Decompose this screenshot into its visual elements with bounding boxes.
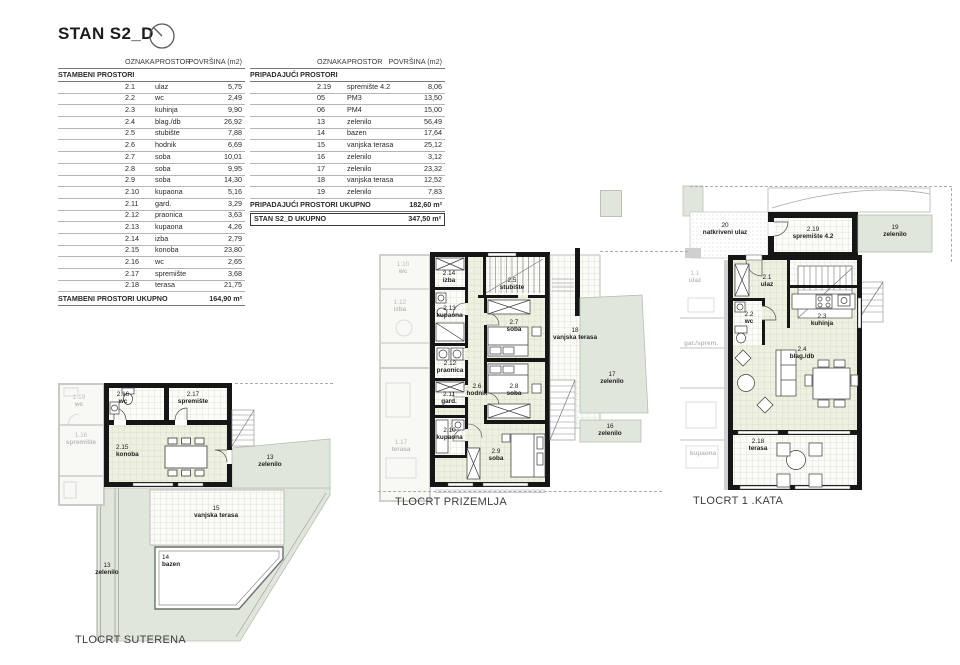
cell-povrsina: 10,01 (224, 151, 242, 162)
cell-povrsina: 3,29 (228, 198, 242, 209)
col-prostor: PROSTOR (347, 56, 382, 67)
neighbor-label-izba: 1.12izba (386, 299, 414, 314)
table-row: 2.18 terasa 21,75 (58, 281, 245, 293)
room-label-blag-db-2-4: 2.4blag./db (780, 346, 824, 361)
boundary-dash-line (600, 251, 688, 252)
cell-prostor: spremište (155, 268, 186, 279)
cell-oznaka: 2.3 (125, 104, 135, 115)
floorplan-sheet: STAN S2_D OZNAKA PROSTOR POVRŠINA (m2) S… (0, 0, 960, 665)
cell-oznaka: 2.12 (125, 209, 139, 220)
table-header: OZNAKA PROSTOR POVRŠINA (m2) (250, 55, 445, 69)
cell-oznaka: 2.1 (125, 81, 135, 92)
cell-prostor: wc (155, 92, 164, 103)
neighbor-label-spremiste: 1.16spremište (58, 432, 104, 447)
table-header: OZNAKA PROSTOR POVRŠINA (m2) (58, 55, 245, 69)
cell-povrsina: 8,06 (428, 81, 442, 92)
cell-povrsina: 14,30 (224, 174, 242, 185)
cell-povrsina: 3,68 (228, 268, 242, 279)
cell-oznaka: 2.9 (125, 174, 135, 185)
table-row: 2.3 kuhinja 9,90 (58, 105, 245, 117)
kitchen (792, 294, 855, 309)
table-row: 2.6 hodnik 6,69 (58, 140, 245, 152)
table-row: 2.10 kupaona 5,16 (58, 187, 245, 199)
room-label-wc-2-2: 2.2wc (736, 311, 762, 326)
room-label-praonica-2-12: 2.12praonica (432, 360, 468, 375)
exterior-stairs (232, 410, 254, 446)
cell-povrsina: 7,88 (228, 127, 242, 138)
room-label-izba-2-14: 2.14izba (434, 270, 464, 285)
cell-prostor: zelenilo (347, 163, 371, 174)
cell-povrsina: 26,92 (224, 116, 242, 127)
cell-oznaka: 2.13 (125, 221, 139, 232)
room-label-kupaona-2-10: 2.10kupaona (433, 427, 466, 442)
cell-povrsina: 5,16 (228, 186, 242, 197)
cell-prostor: terasa (155, 279, 175, 290)
cell-prostor: PM3 (347, 92, 362, 103)
cell-oznaka: 17 (317, 163, 325, 174)
north-arrow-icon (146, 20, 180, 54)
cell-oznaka: 2.8 (125, 163, 135, 174)
table-row: 2.13 kupaona 4,26 (58, 222, 245, 234)
cell-povrsina: 2,49 (228, 92, 242, 103)
table-row: 2.17 spremište 3,68 (58, 269, 245, 281)
cell-prostor: ulaz (155, 81, 168, 92)
cell-prostor: praonica (155, 209, 183, 220)
cell-povrsina: 9,95 (228, 163, 242, 174)
area-label-bazen-14: 14bazen (162, 554, 180, 569)
pripadajuci-rows: 2.19 spremište 4.2 8,06 05 PM3 13,50 06 … (250, 82, 445, 199)
neighbor-label-gard-sprem: gar./sprem. (680, 340, 722, 347)
room-label-soba-2-7: 2.7soba (496, 319, 532, 334)
caption-tlocrt-suterena: TLOCRT SUTERENA (75, 634, 186, 646)
area-label-natkriveni-ulaz-20: 20natkriveni ulaz (694, 222, 756, 237)
cell-oznaka: 2.4 (125, 116, 135, 127)
area-label-zelenilo-strip: 13zelenilo (86, 562, 128, 577)
cell-povrsina: 17,64 (424, 127, 442, 138)
col-povrsina: POVRŠINA (m2) (188, 56, 242, 67)
area-label-zelenilo-19: 19zelenilo (872, 224, 918, 239)
caption-tlocrt-1-kata: TLOCRT 1 .KATA (693, 495, 783, 507)
room-label-soba-2-9: 2.9soba (478, 448, 514, 463)
green-area-patch (600, 190, 622, 217)
entry-closet (735, 264, 749, 296)
neighbor-label-kupaona: kupaona (684, 450, 722, 457)
cell-prostor: gard. (155, 198, 171, 209)
cell-oznaka: 2.16 (125, 256, 139, 267)
table-row: 2.14 izba 2,79 (58, 234, 245, 246)
exterior-stairs (550, 380, 575, 440)
cell-povrsina: 5,75 (228, 81, 242, 92)
col-oznaka: OZNAKA (125, 56, 155, 67)
area-label-vanjska-terasa-15: 15vanjska terasa (178, 505, 254, 520)
cell-prostor: soba (155, 163, 171, 174)
table-row: 2.5 stubište 7,88 (58, 129, 245, 141)
table-row: 2.2 wc 2,49 (58, 94, 245, 106)
green-areas (580, 295, 648, 442)
cell-povrsina: 23,32 (424, 163, 442, 174)
grand-total-row: STAN S2_D UKUPNO 347,50 m² (250, 213, 445, 226)
cell-oznaka: 16 (317, 151, 325, 162)
cell-prostor: wc (155, 256, 164, 267)
cell-povrsina: 3,12 (428, 151, 442, 162)
page-title: STAN S2_D (58, 24, 154, 44)
cell-prostor: blag./db (155, 116, 181, 127)
room-label-gard-2-11: 2.11gard. (434, 391, 464, 406)
boundary-dash-line (951, 188, 952, 262)
cell-oznaka: 2.7 (125, 151, 135, 162)
plan-kata1: 20natkriveni ulaz 2.19spremište 4.2 19ze… (680, 178, 960, 513)
cell-oznaka: 14 (317, 127, 325, 138)
area-label-zelenilo-13: 13zelenilo (248, 454, 292, 469)
cell-povrsina: 23,80 (224, 244, 242, 255)
table-row: 2.15 konoba 23,80 (58, 246, 245, 258)
area-label-vanjska-terasa-18: 18vanjska terasa (552, 327, 598, 342)
table-row: 2.1 ulaz 5,75 (58, 82, 245, 94)
cell-prostor: kupaona (155, 186, 183, 197)
windows (133, 483, 203, 486)
cell-prostor: kuhinja (155, 104, 178, 115)
room-label-spremiste-2-19: 2.19spremište 4.2 (776, 226, 850, 241)
plan-prizemlje: 2.14izba 2.5stubište 2.13kupaona 2.7soba… (378, 243, 653, 518)
cell-oznaka: 15 (317, 139, 325, 150)
cell-prostor: izba (155, 233, 168, 244)
room-label-ulaz-2-1: 2.1ulaz (752, 274, 782, 289)
cell-oznaka: 2.14 (125, 233, 139, 244)
cell-oznaka: 13 (317, 116, 325, 127)
table-row: 2.8 soba 9,95 (58, 164, 245, 176)
cell-povrsina: 3,63 (228, 209, 242, 220)
cell-oznaka: 2.10 (125, 186, 139, 197)
room-label-terasa-2-18: 2.18terasa (740, 438, 776, 453)
cell-prostor: konoba (155, 244, 179, 255)
cell-oznaka: 2.19 (317, 81, 331, 92)
cell-povrsina: 13,50 (424, 92, 442, 103)
caption-tlocrt-prizemlja: TLOCRT PRIZEMLJA (395, 496, 507, 508)
neighbor-label-ulaz: 1.1ulaz (682, 270, 708, 285)
plan-suterena-drawing (58, 378, 338, 665)
pripadajuci-total-row: PRIPADAJUĆI PROSTORI UKUPNO 182,60 m² (250, 199, 445, 213)
table-row: 2.4 blag./db 26,92 (58, 117, 245, 129)
table-row: 2.16 wc 2,65 (58, 257, 245, 269)
area-label-zelenilo-16: 16zelenilo (588, 423, 632, 438)
cell-oznaka: 2.15 (125, 244, 139, 255)
cell-povrsina: 2,79 (228, 233, 242, 244)
section-title: STAMBENI PROSTORI (58, 69, 245, 82)
cell-prostor: stubište (155, 127, 180, 138)
green-stub (683, 186, 703, 216)
cell-prostor: soba (155, 174, 171, 185)
stambeni-total-row: STAMBENI PROSTORI UKUPNO 164,90 m² (58, 292, 245, 306)
cell-prostor: bazen (347, 127, 367, 138)
cell-povrsina: 15,00 (424, 104, 442, 115)
table-row: 2.12 praonica 3,63 (58, 211, 245, 223)
cell-oznaka: 06 (317, 104, 325, 115)
cell-prostor: zelenilo (347, 186, 371, 197)
room-label-stubiste-2-5: 2.5stubište (490, 277, 534, 292)
interior-stairs (798, 266, 852, 318)
cell-prostor: hodnik (155, 139, 176, 150)
cell-prostor: kupaona (155, 221, 183, 232)
neighbor-unit-faded (380, 255, 430, 501)
dining-table (165, 438, 207, 476)
table-stambeni-prostori: OZNAKA PROSTOR POVRŠINA (m2) STAMBENI PR… (58, 55, 245, 306)
neighbor-label-wc: 1.19wc (66, 394, 92, 409)
cell-povrsina: 4,26 (228, 221, 242, 232)
table-row: 2.9 soba 14,30 (58, 176, 245, 188)
cell-povrsina: 25,12 (424, 139, 442, 150)
cell-povrsina: 7,83 (428, 186, 442, 197)
cell-oznaka: 18 (317, 174, 325, 185)
cell-povrsina: 21,75 (224, 279, 242, 290)
room-label-wc-2-16: 2.16wc (110, 391, 136, 406)
cell-povrsina: 12,52 (424, 174, 442, 185)
room-label-kupaona-2-13: 2.13kupaona (433, 305, 466, 320)
cell-prostor: vanjska terasa (347, 174, 393, 185)
table-row: 2.11 gard. 3,29 (58, 199, 245, 211)
table-row: 2.7 soba 10,01 (58, 152, 245, 164)
cell-prostor: zelenilo (347, 151, 371, 162)
cell-povrsina: 6,69 (228, 139, 242, 150)
col-prostor: PROSTOR (155, 56, 190, 67)
room-label-kuhinja-2-3: 2.3kuhinja (800, 313, 844, 328)
room-label-hodnik-2-6: 2.6hodnik (462, 383, 492, 398)
room-label-soba-2-8: 2.8soba (496, 383, 532, 398)
roof-outline (768, 188, 930, 212)
cell-prostor: zelenilo (347, 116, 371, 127)
cell-prostor: vanjska terasa (347, 139, 393, 150)
boundary-dash-line (690, 186, 952, 187)
table-row: 19 zelenilo 7,83 (250, 187, 445, 199)
cell-prostor: spremište 4.2 (347, 81, 390, 92)
col-oznaka: OZNAKA (317, 56, 347, 67)
cell-oznaka: 2.5 (125, 127, 135, 138)
cell-povrsina: 56,49 (424, 116, 442, 127)
neighbor-label-terasa: 1.17terasa (384, 439, 418, 454)
col-povrsina: POVRŠINA (m2) (388, 56, 442, 67)
area-label-zelenilo-17: 17zelenilo (590, 371, 634, 386)
stambeni-rows: 2.1 ulaz 5,75 2.2 wc 2,49 2.3 kuhinja 9,… (58, 82, 245, 292)
table-pripadajuci-prostori: OZNAKA PROSTOR POVRŠINA (m2) PRIPADAJUĆI… (250, 55, 445, 226)
boundary-dash-line (378, 491, 662, 492)
cell-oznaka: 2.17 (125, 268, 139, 279)
cell-oznaka: 2.11 (125, 198, 138, 209)
plan-suterena: 2.16wc 2.17spremište 2.15konoba 13zeleni… (58, 378, 338, 665)
cell-oznaka: 05 (317, 92, 325, 103)
cell-prostor: soba (155, 151, 171, 162)
cell-prostor: PM4 (347, 104, 362, 115)
boundary-dash-line (235, 383, 333, 384)
cell-povrsina: 2,65 (228, 256, 242, 267)
neighbor-label-wc: 1.10wc (390, 261, 416, 276)
room-label-konoba-2-15: 2.15konoba (116, 444, 139, 459)
cell-oznaka: 19 (317, 186, 325, 197)
cell-oznaka: 2.2 (125, 92, 135, 103)
cell-oznaka: 2.6 (125, 139, 135, 150)
cell-oznaka: 2.18 (125, 279, 139, 290)
cell-povrsina: 9,90 (228, 104, 242, 115)
room-label-spremiste-2-17: 2.17spremište (173, 391, 213, 406)
